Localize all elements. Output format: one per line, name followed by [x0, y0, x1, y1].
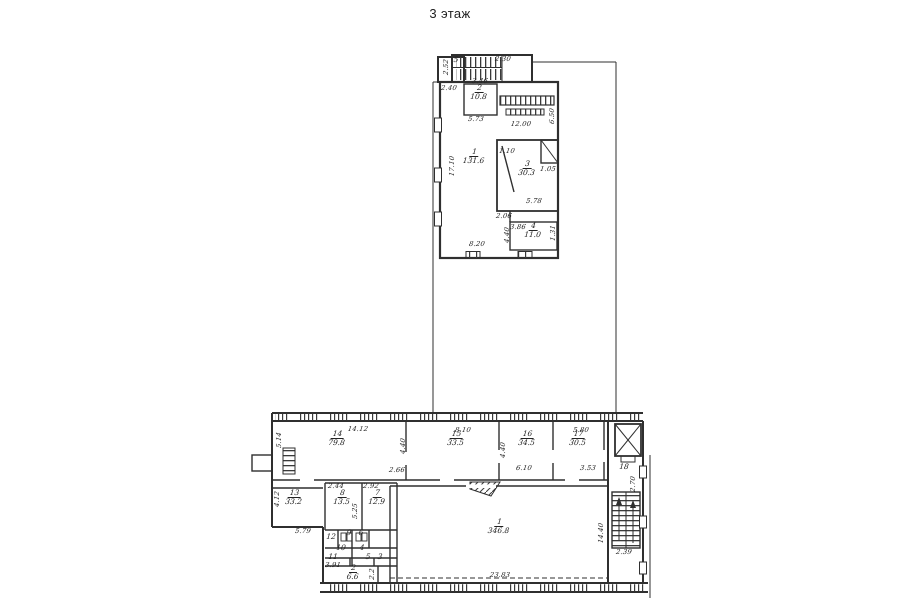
sanitary-fixtures: [341, 533, 367, 541]
drawing-sheet: 3 этаж: [0, 0, 900, 604]
upper-building-walls: [438, 55, 558, 258]
upper-staircase-icon: [452, 55, 502, 82]
lower-staircase-icon: [612, 492, 640, 548]
right-wing-line: [640, 455, 651, 598]
floor-plan-drawing: [0, 0, 900, 604]
lower-building-walls: [252, 413, 648, 592]
window-strips: [275, 414, 645, 591]
upper-windows: [435, 118, 533, 259]
elevator-icon: [615, 424, 641, 462]
